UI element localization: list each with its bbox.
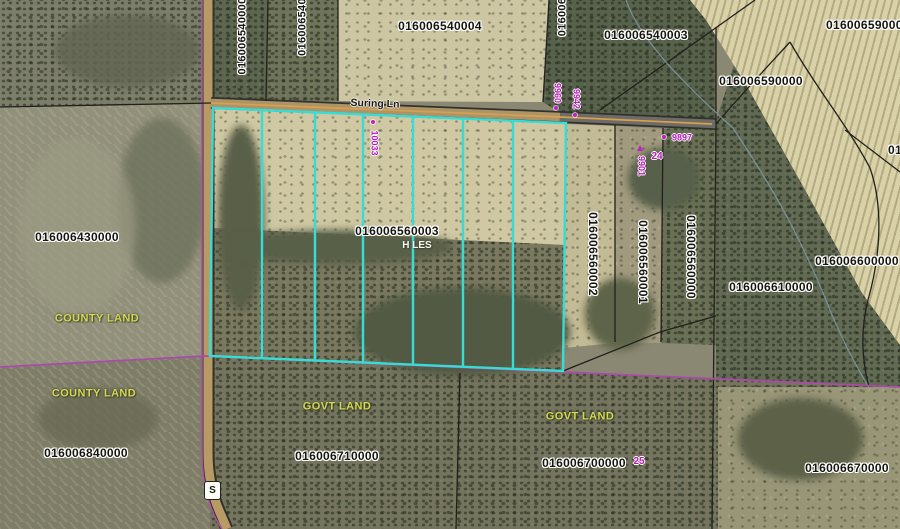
address-point-marker [371,120,375,124]
govt-land-label-2: GOVT LAND [546,412,614,423]
parcel-label-016006670000: 016006670000 [805,462,889,474]
address-label-10033: 10033 [370,130,379,155]
county-land-label-1: COUNTY LAND [55,314,139,325]
address-label-9897: 9897 [672,134,692,143]
parcel-label-016006590000: 016006590000 [719,75,803,87]
parcel-label-right-edge-cut: 01 [888,144,900,156]
selected-parcel-outline[interactable] [210,108,566,371]
parcel-label-016006-cut: 016006 [558,0,569,36]
parcel-label-016006560003: 016006560003 [355,225,439,237]
address-label-9901: 9901 [637,156,646,176]
lot-number-24: 24 [651,152,662,162]
address-label-9960: 9960 [553,83,562,103]
govt-land-label-1: GOVT LAND [303,402,371,413]
parcel-owner-label: H LES [402,241,431,251]
lot-number-25: 25 [633,457,644,467]
county-land-label-2: COUNTY LAND [52,389,136,400]
county-road-shield-letter: S [209,485,216,496]
address-point-marker [662,135,666,139]
address-label-9942: 9942 [572,89,581,109]
parcel-label-016006540-cut: 016006540 [298,0,309,56]
parcel-label-016006560002: 016006560002 [587,212,599,296]
parcel-label-016006540000: 016006540000 [238,0,249,75]
parcel-label-016006610000: 016006610000 [729,281,813,293]
county-road-shield: S [204,481,221,500]
parcel-label-016006540003: 016006540003 [604,29,688,41]
parcel-label-016006840000: 016006840000 [44,447,128,459]
address-point-marker [573,113,577,117]
parcel-label-016006560000: 016006560000 [685,215,697,299]
map-canvas[interactable]: 016006540000 016006540 016006 0160065600… [0,0,900,529]
address-arrow-icon [637,145,643,151]
parcel-label-016006590000-corner: 016006590000 [826,19,900,31]
road-centerline [211,103,712,124]
parcel-label-016006710000: 016006710000 [295,450,379,462]
street-label-suring-ln: Suring Ln [350,98,399,110]
parcel-label-016006540004: 016006540004 [398,20,482,32]
parcel-label-016006560001: 016006560001 [637,220,649,304]
address-point-marker [554,106,558,110]
parcel-label-016006430000: 016006430000 [35,231,119,243]
boundary-magenta-county [0,356,900,387]
parcel-label-016006600000: 016006600000 [815,255,899,267]
parcel-label-016006700000: 016006700000 [542,457,626,469]
